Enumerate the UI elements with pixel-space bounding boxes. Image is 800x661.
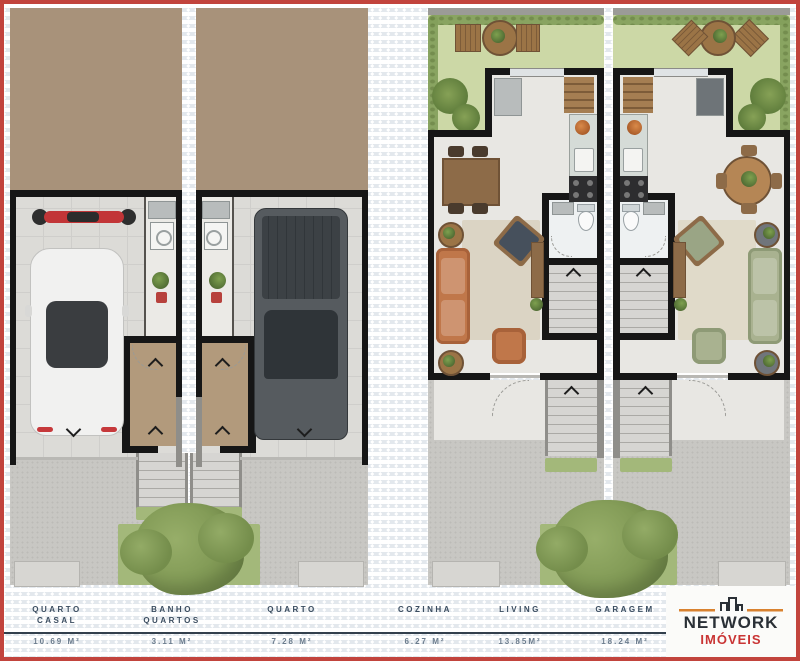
room-name: QUARTO: [244, 604, 340, 628]
room-area: 13.85M²: [472, 637, 568, 646]
roof-slab: [196, 8, 368, 190]
low-wall: [196, 397, 202, 467]
shrub-border: [780, 15, 790, 137]
upper-floor-plan-unit-a: [428, 8, 604, 585]
wall: [540, 373, 604, 380]
room-area: 3.11 M²: [124, 637, 220, 646]
wall: [196, 336, 256, 343]
logo-brand-name: NETWORK: [684, 614, 779, 632]
dining-table-icon: [442, 158, 500, 206]
low-wall: [176, 397, 182, 467]
shrub-border: [428, 15, 438, 137]
shrub-border: [613, 15, 790, 25]
network-imoveis-logo: NETWORK IMÓVEIS: [666, 586, 796, 657]
wall: [122, 446, 158, 453]
low-wall: [597, 380, 604, 458]
plant-icon: [530, 298, 543, 311]
floorplan-flyer: QUARTO CASAL 10.69 M² BANHO QUARTOS 3.11…: [0, 0, 800, 661]
kitchen-counter: [494, 78, 522, 116]
wall: [10, 190, 182, 197]
legend-item-banho-quartos: BANHO QUARTOS 3.11 M²: [124, 604, 220, 646]
plant-icon: [763, 227, 775, 239]
legend-item-quarto-casal: QUARTO CASAL 10.69 M²: [9, 604, 105, 646]
plant-icon: [443, 227, 455, 239]
ground-unit: [10, 8, 182, 585]
city-skyline-icon: [679, 597, 783, 613]
plant-icon: [443, 355, 455, 367]
wall: [196, 197, 202, 397]
armchair-icon: [692, 328, 726, 364]
wall: [362, 197, 368, 465]
entry-paver: [14, 561, 80, 587]
garden-chair-icon: [516, 24, 540, 52]
kitchen-shelf: [564, 77, 594, 113]
plant-icon: [152, 272, 169, 289]
dining-chair-icon: [741, 203, 757, 214]
room-name: LIVING: [472, 604, 568, 628]
party-wall: [613, 68, 620, 380]
wall: [196, 190, 368, 197]
garage-door-line: [240, 457, 362, 460]
legend-item-cozinha: COZINHA 6.27 M²: [377, 604, 473, 646]
dining-chair-icon: [448, 146, 464, 157]
wall: [10, 197, 16, 465]
wall: [542, 333, 597, 340]
kitchen-counter: [696, 78, 724, 116]
garden-chair-icon: [455, 24, 481, 52]
room-area: 18.24 M²: [577, 637, 673, 646]
tree-icon: [550, 500, 668, 598]
wall: [542, 258, 597, 265]
dining-chair-icon: [771, 173, 782, 189]
washing-machine-icon: [150, 222, 174, 250]
wall: [428, 130, 490, 137]
low-wall: [613, 380, 620, 458]
kitchen-sink-icon: [574, 148, 594, 172]
kitchen-sink-icon: [623, 148, 643, 172]
dining-chair-icon: [716, 173, 727, 189]
room-area: 7.28 M²: [244, 637, 340, 646]
kitchen-shelf: [623, 77, 653, 113]
pickup-truck-icon: [254, 208, 348, 440]
tree-icon: [134, 503, 244, 595]
wall: [428, 373, 490, 380]
upper-floor-plan-unit-b: [613, 8, 790, 585]
sideboard-icon: [673, 242, 686, 298]
laundry-basket-icon: [156, 292, 167, 303]
garage-door-line: [16, 457, 138, 460]
wall: [726, 68, 733, 137]
entry-paver: [298, 561, 364, 587]
sofa-cushion: [753, 258, 777, 294]
wall: [620, 258, 675, 265]
logo-brand-segment: IMÓVEIS: [700, 633, 761, 647]
upper-unit: [428, 8, 604, 585]
dining-chair-icon: [472, 203, 488, 214]
room-name: COZINHA: [377, 604, 473, 628]
dining-chair-icon: [741, 145, 757, 156]
boundary-fence: [613, 8, 790, 15]
entry-paver: [718, 561, 786, 587]
plant-icon: [209, 272, 226, 289]
sofa-cushion: [441, 258, 465, 294]
legend-item-garagem: GARAGEM 18.24 M²: [577, 604, 673, 646]
ground-floor-plan-unit-b: [196, 8, 368, 585]
kitchen-window: [654, 68, 708, 77]
party-wall: [597, 68, 604, 380]
motorcycle-icon: [32, 202, 136, 234]
palm-tree-icon: [452, 104, 480, 132]
wall: [176, 197, 182, 397]
palm-tree-icon: [738, 104, 766, 132]
bathroom-sink-icon: [643, 202, 665, 215]
upper-unit-mirrored: [613, 8, 790, 585]
fruit-bowl-icon: [627, 120, 642, 135]
legend-item-living: LIVING 13.85M²: [472, 604, 568, 646]
laundry-cabinet: [202, 201, 230, 219]
dining-chair-icon: [472, 146, 488, 157]
terrace-door-line: [677, 375, 728, 378]
washing-machine-icon: [204, 222, 228, 250]
plant-icon: [674, 298, 687, 311]
wall: [485, 68, 492, 137]
ground-floor-plan-unit-a: [10, 8, 182, 585]
dining-chair-icon: [448, 203, 464, 214]
wall: [620, 333, 675, 340]
boundary-fence: [428, 8, 604, 15]
wall: [220, 446, 256, 453]
laundry-cabinet: [148, 201, 176, 219]
plant-icon: [741, 171, 757, 187]
stove-icon: [620, 176, 648, 202]
terrace-door-line: [490, 375, 540, 378]
room-name: BANHO QUARTOS: [124, 604, 220, 628]
sofa-cushion: [753, 300, 777, 336]
legend-item-quarto: QUARTO 7.28 M²: [244, 604, 340, 646]
ground-unit-mirrored: [196, 8, 368, 585]
sideboard-icon: [531, 242, 544, 298]
room-name: GARAGEM: [577, 604, 673, 628]
wall: [784, 137, 790, 380]
room-area: 6.27 M²: [377, 637, 473, 646]
car-icon: [30, 248, 124, 436]
armchair-icon: [492, 328, 526, 364]
kitchen-window: [510, 68, 564, 77]
room-name: QUARTO CASAL: [9, 604, 105, 628]
plant-icon: [713, 29, 727, 43]
plant-icon: [491, 29, 505, 43]
sofa-cushion: [441, 300, 465, 336]
wall: [728, 373, 790, 380]
bathroom-sink-icon: [552, 202, 574, 215]
wall: [428, 137, 434, 380]
wall: [613, 373, 677, 380]
flower-pot-icon: [211, 292, 222, 303]
plant-icon: [763, 355, 775, 367]
room-area: 10.69 M²: [9, 637, 105, 646]
wall: [122, 336, 182, 343]
grass-strip: [545, 458, 597, 472]
roof-slab: [10, 8, 182, 190]
entry-paver: [432, 561, 500, 587]
wall: [728, 130, 790, 137]
fruit-bowl-icon: [575, 120, 590, 135]
grass-strip: [620, 458, 672, 472]
stove-icon: [569, 176, 597, 202]
